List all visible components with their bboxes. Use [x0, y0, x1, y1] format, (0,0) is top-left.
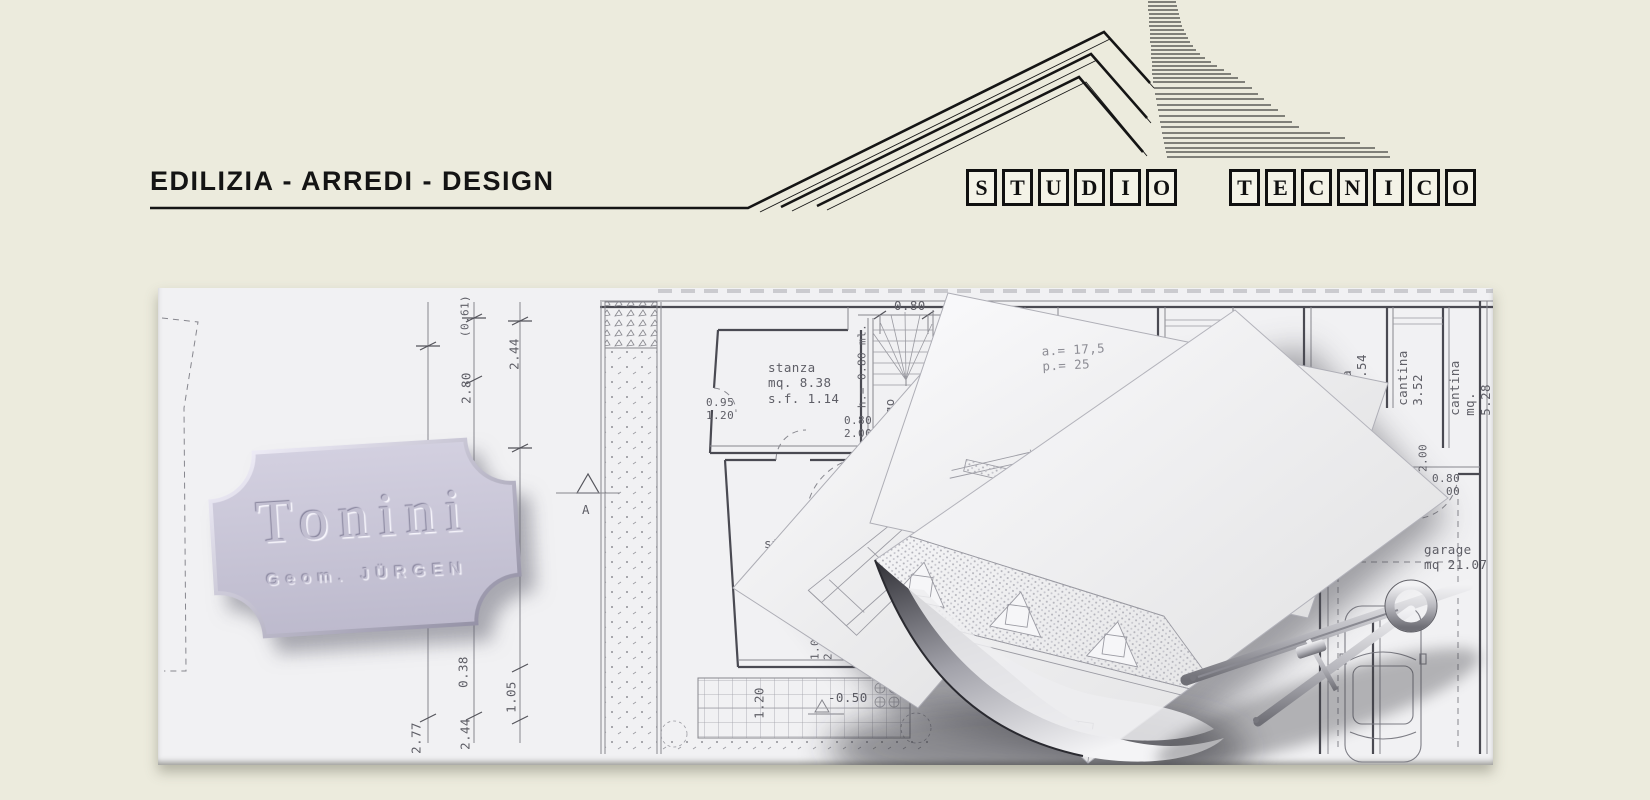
studio-letter-box: E: [1265, 169, 1296, 206]
studio-letter-box: U: [1038, 169, 1069, 206]
studio-letter-box: I: [1373, 169, 1404, 206]
studio-letter-box: T: [1002, 169, 1033, 206]
studio-letter-box: N: [1337, 169, 1368, 206]
blueprint-photo: 0.80 stanza mq. 8.38 s.f. 1.14 0.95 1.20…: [158, 288, 1493, 765]
studio-letter-box: C: [1409, 169, 1440, 206]
studio-letter-box: O: [1445, 169, 1476, 206]
studio-tecnico-boxed-title: S T U D I O T E C N I C O: [966, 169, 1476, 206]
studio-letter-box: S: [966, 169, 997, 206]
studio-letter-box: T: [1229, 169, 1260, 206]
studio-letter-box: C: [1301, 169, 1332, 206]
studio-tecnico-banner-page: { "colors": { "page_bg": "#ecebdd", "pho…: [0, 0, 1650, 800]
studio-letter-box: D: [1074, 169, 1105, 206]
tonini-logo-plaque: Tonini Geom. JÜRGEN: [199, 428, 531, 647]
word-gap: [1182, 169, 1224, 206]
studio-letter-box: O: [1146, 169, 1177, 206]
studio-letter-box: I: [1110, 169, 1141, 206]
